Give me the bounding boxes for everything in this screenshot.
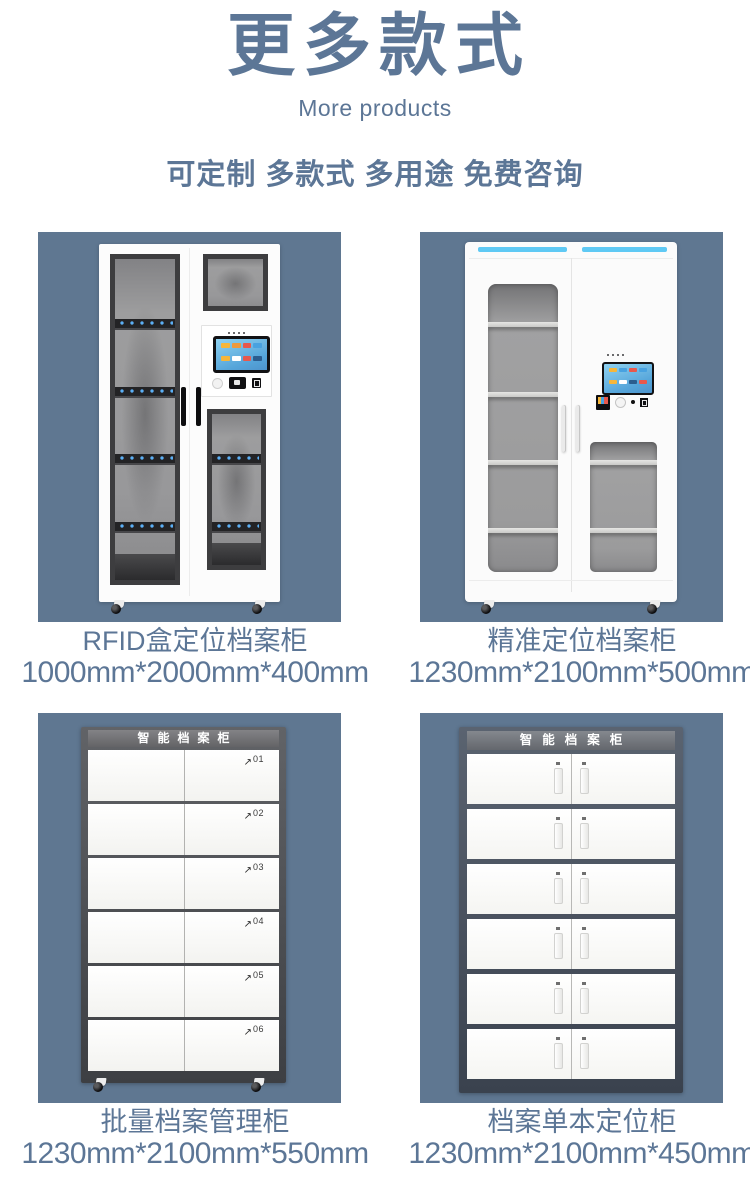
drawer-divider — [184, 750, 185, 801]
drawer-divider — [184, 912, 185, 963]
door-row — [467, 919, 675, 969]
palm-reader-icon — [615, 397, 626, 408]
glass-door-left — [110, 254, 180, 585]
drawer-divider — [184, 858, 185, 909]
drawer-divider — [184, 966, 185, 1017]
drawer-number-label: ↗ 02 — [244, 808, 264, 822]
door-handle — [580, 768, 589, 794]
cabinet-rfid-illustration — [99, 244, 280, 602]
camera-dots — [202, 330, 271, 334]
drawer-rows: ↗ 01 ↗ 02 ↗ 03 — [88, 750, 279, 1074]
cabinet-single-illustration: 智能档案柜 — [459, 727, 683, 1093]
drawer-number: 02 — [253, 808, 264, 818]
door-row — [467, 974, 675, 1024]
control-panel — [201, 325, 272, 397]
caster-wheel — [111, 600, 127, 615]
glass-window-lower — [590, 442, 657, 572]
led-shelf — [115, 319, 175, 330]
door-seam — [189, 248, 190, 596]
door-rows — [467, 754, 675, 1084]
fingerprint-reader-icon — [229, 377, 246, 389]
door-handle — [554, 768, 563, 794]
cabinet-interior — [115, 259, 175, 557]
drawer-number-label: ↗ 03 — [244, 862, 264, 876]
led-shelf — [212, 454, 261, 465]
product-name: 批量档案管理柜 — [10, 1108, 380, 1137]
open-arrow-icon: ↗ — [244, 812, 252, 822]
caster-wheel — [647, 600, 663, 615]
drawer-row: ↗ 03 — [88, 858, 279, 909]
door-handle — [562, 405, 566, 452]
drawer-row: ↗ 01 — [88, 750, 279, 801]
drawer-number-label: ↗ 01 — [244, 754, 264, 768]
drawer-divider — [184, 1020, 185, 1071]
shelf — [590, 460, 657, 465]
led-shelf — [115, 387, 175, 398]
door-handle — [554, 878, 563, 904]
product-tile-batch: 智能档案柜 ↗ 01 ↗ 02 — [38, 713, 341, 1103]
cabinet-floor — [212, 543, 261, 565]
door-row — [467, 754, 675, 804]
led-shelf — [115, 454, 175, 465]
door-handle — [580, 878, 589, 904]
product-dimensions: 1230mm*2100mm*500mm — [400, 656, 750, 689]
glass-window-lower — [207, 409, 266, 570]
cabinet-interior — [208, 259, 263, 306]
drawer-number-label: ↗ 05 — [244, 970, 264, 984]
product-dimensions: 1230mm*2100mm*450mm — [400, 1137, 750, 1170]
door-divider — [571, 809, 572, 859]
product-caption-rfid: RFID盒定位档案柜 1000mm*2000mm*400mm — [10, 627, 380, 689]
reader-row — [202, 377, 271, 389]
led-shelf — [212, 522, 261, 533]
reader-row — [596, 393, 660, 411]
caster-wheel — [252, 600, 268, 615]
drawer-number: 06 — [253, 1024, 264, 1034]
camera-dots — [571, 352, 659, 356]
drawer-row: ↗ 04 — [88, 912, 279, 963]
open-arrow-icon: ↗ — [244, 758, 252, 768]
door-handle — [554, 1043, 563, 1069]
card-reader-icon — [252, 378, 261, 388]
page-title: 更多款式 — [0, 4, 750, 89]
door-seam — [571, 258, 572, 592]
uv-light-strip — [478, 247, 567, 252]
glass-window-top — [203, 254, 268, 311]
door-handle — [576, 405, 580, 452]
product-dimensions: 1000mm*2000mm*400mm — [10, 656, 380, 689]
touchscreen — [602, 362, 654, 395]
cabinet-floor — [115, 554, 175, 580]
door-divider — [571, 1029, 572, 1079]
uv-light-strip — [582, 247, 667, 252]
glass-door-left — [488, 284, 558, 572]
product-caption-precise: 精准定位档案柜 1230mm*2100mm*500mm — [400, 627, 750, 689]
cabinet-header-label: 智能档案柜 — [467, 731, 675, 750]
open-arrow-icon: ↗ — [244, 974, 252, 984]
door-handle — [580, 1043, 589, 1069]
product-tile-rfid — [38, 232, 341, 622]
shelf — [590, 528, 657, 533]
drawer-divider — [184, 804, 185, 855]
product-tile-single: 智能档案柜 — [420, 713, 723, 1103]
product-caption-single: 档案单本定位柜 1230mm*2100mm*450mm — [400, 1108, 750, 1170]
drawer-number: 01 — [253, 754, 264, 764]
open-arrow-icon: ↗ — [244, 1028, 252, 1038]
door-handle — [554, 823, 563, 849]
product-name: RFID盒定位档案柜 — [10, 627, 380, 656]
caster-wheel — [481, 600, 497, 615]
shelf — [488, 392, 558, 397]
product-dimensions: 1230mm*2100mm*550mm — [10, 1137, 380, 1170]
drawer-row: ↗ 06 — [88, 1020, 279, 1071]
shelf — [488, 460, 558, 465]
door-handle — [580, 823, 589, 849]
drawer-row: ↗ 05 — [88, 966, 279, 1017]
touchscreen — [213, 336, 270, 373]
open-arrow-icon: ↗ — [244, 866, 252, 876]
drawer-number: 03 — [253, 862, 264, 872]
shelf — [488, 528, 558, 533]
shelf — [488, 322, 558, 327]
drawer-row: ↗ 02 — [88, 804, 279, 855]
door-divider — [571, 919, 572, 969]
drawer-number-label: ↗ 06 — [244, 1024, 264, 1038]
door-handle — [554, 988, 563, 1014]
cabinet-precise-illustration — [465, 242, 677, 602]
door-handle — [181, 387, 186, 426]
open-arrow-icon: ↗ — [244, 920, 252, 930]
product-caption-batch: 批量档案管理柜 1230mm*2100mm*550mm — [10, 1108, 380, 1170]
door-handle — [554, 933, 563, 959]
door-divider — [571, 754, 572, 804]
door-handle — [580, 988, 589, 1014]
door-divider — [571, 864, 572, 914]
promo-page: 更多款式 More products 可定制 多款式 多用途 免费咨询 — [0, 0, 750, 1198]
door-row — [467, 809, 675, 859]
caster-wheel — [93, 1078, 109, 1093]
door-row — [467, 1029, 675, 1079]
door-handle — [580, 933, 589, 959]
caster-wheel — [251, 1078, 267, 1093]
drawer-number: 04 — [253, 916, 264, 926]
tagline: 可定制 多款式 多用途 免费咨询 — [0, 151, 750, 193]
card-reader-icon — [640, 398, 648, 407]
keypad-icon — [596, 395, 610, 410]
page-subtitle: More products — [0, 95, 750, 122]
cabinet-header-label: 智能档案柜 — [88, 730, 279, 747]
speaker-icon — [212, 378, 223, 389]
led-shelf — [115, 522, 175, 533]
panel-seam — [469, 580, 673, 581]
drawer-number: 05 — [253, 970, 264, 980]
drawer-number-label: ↗ 04 — [244, 916, 264, 930]
indicator-dot — [631, 400, 635, 404]
product-name: 档案单本定位柜 — [400, 1108, 750, 1137]
product-name: 精准定位档案柜 — [400, 627, 750, 656]
door-handle — [196, 387, 201, 426]
product-tile-precise — [420, 232, 723, 622]
door-divider — [571, 974, 572, 1024]
cabinet-batch-illustration: 智能档案柜 ↗ 01 ↗ 02 — [81, 727, 286, 1083]
door-row — [467, 864, 675, 914]
